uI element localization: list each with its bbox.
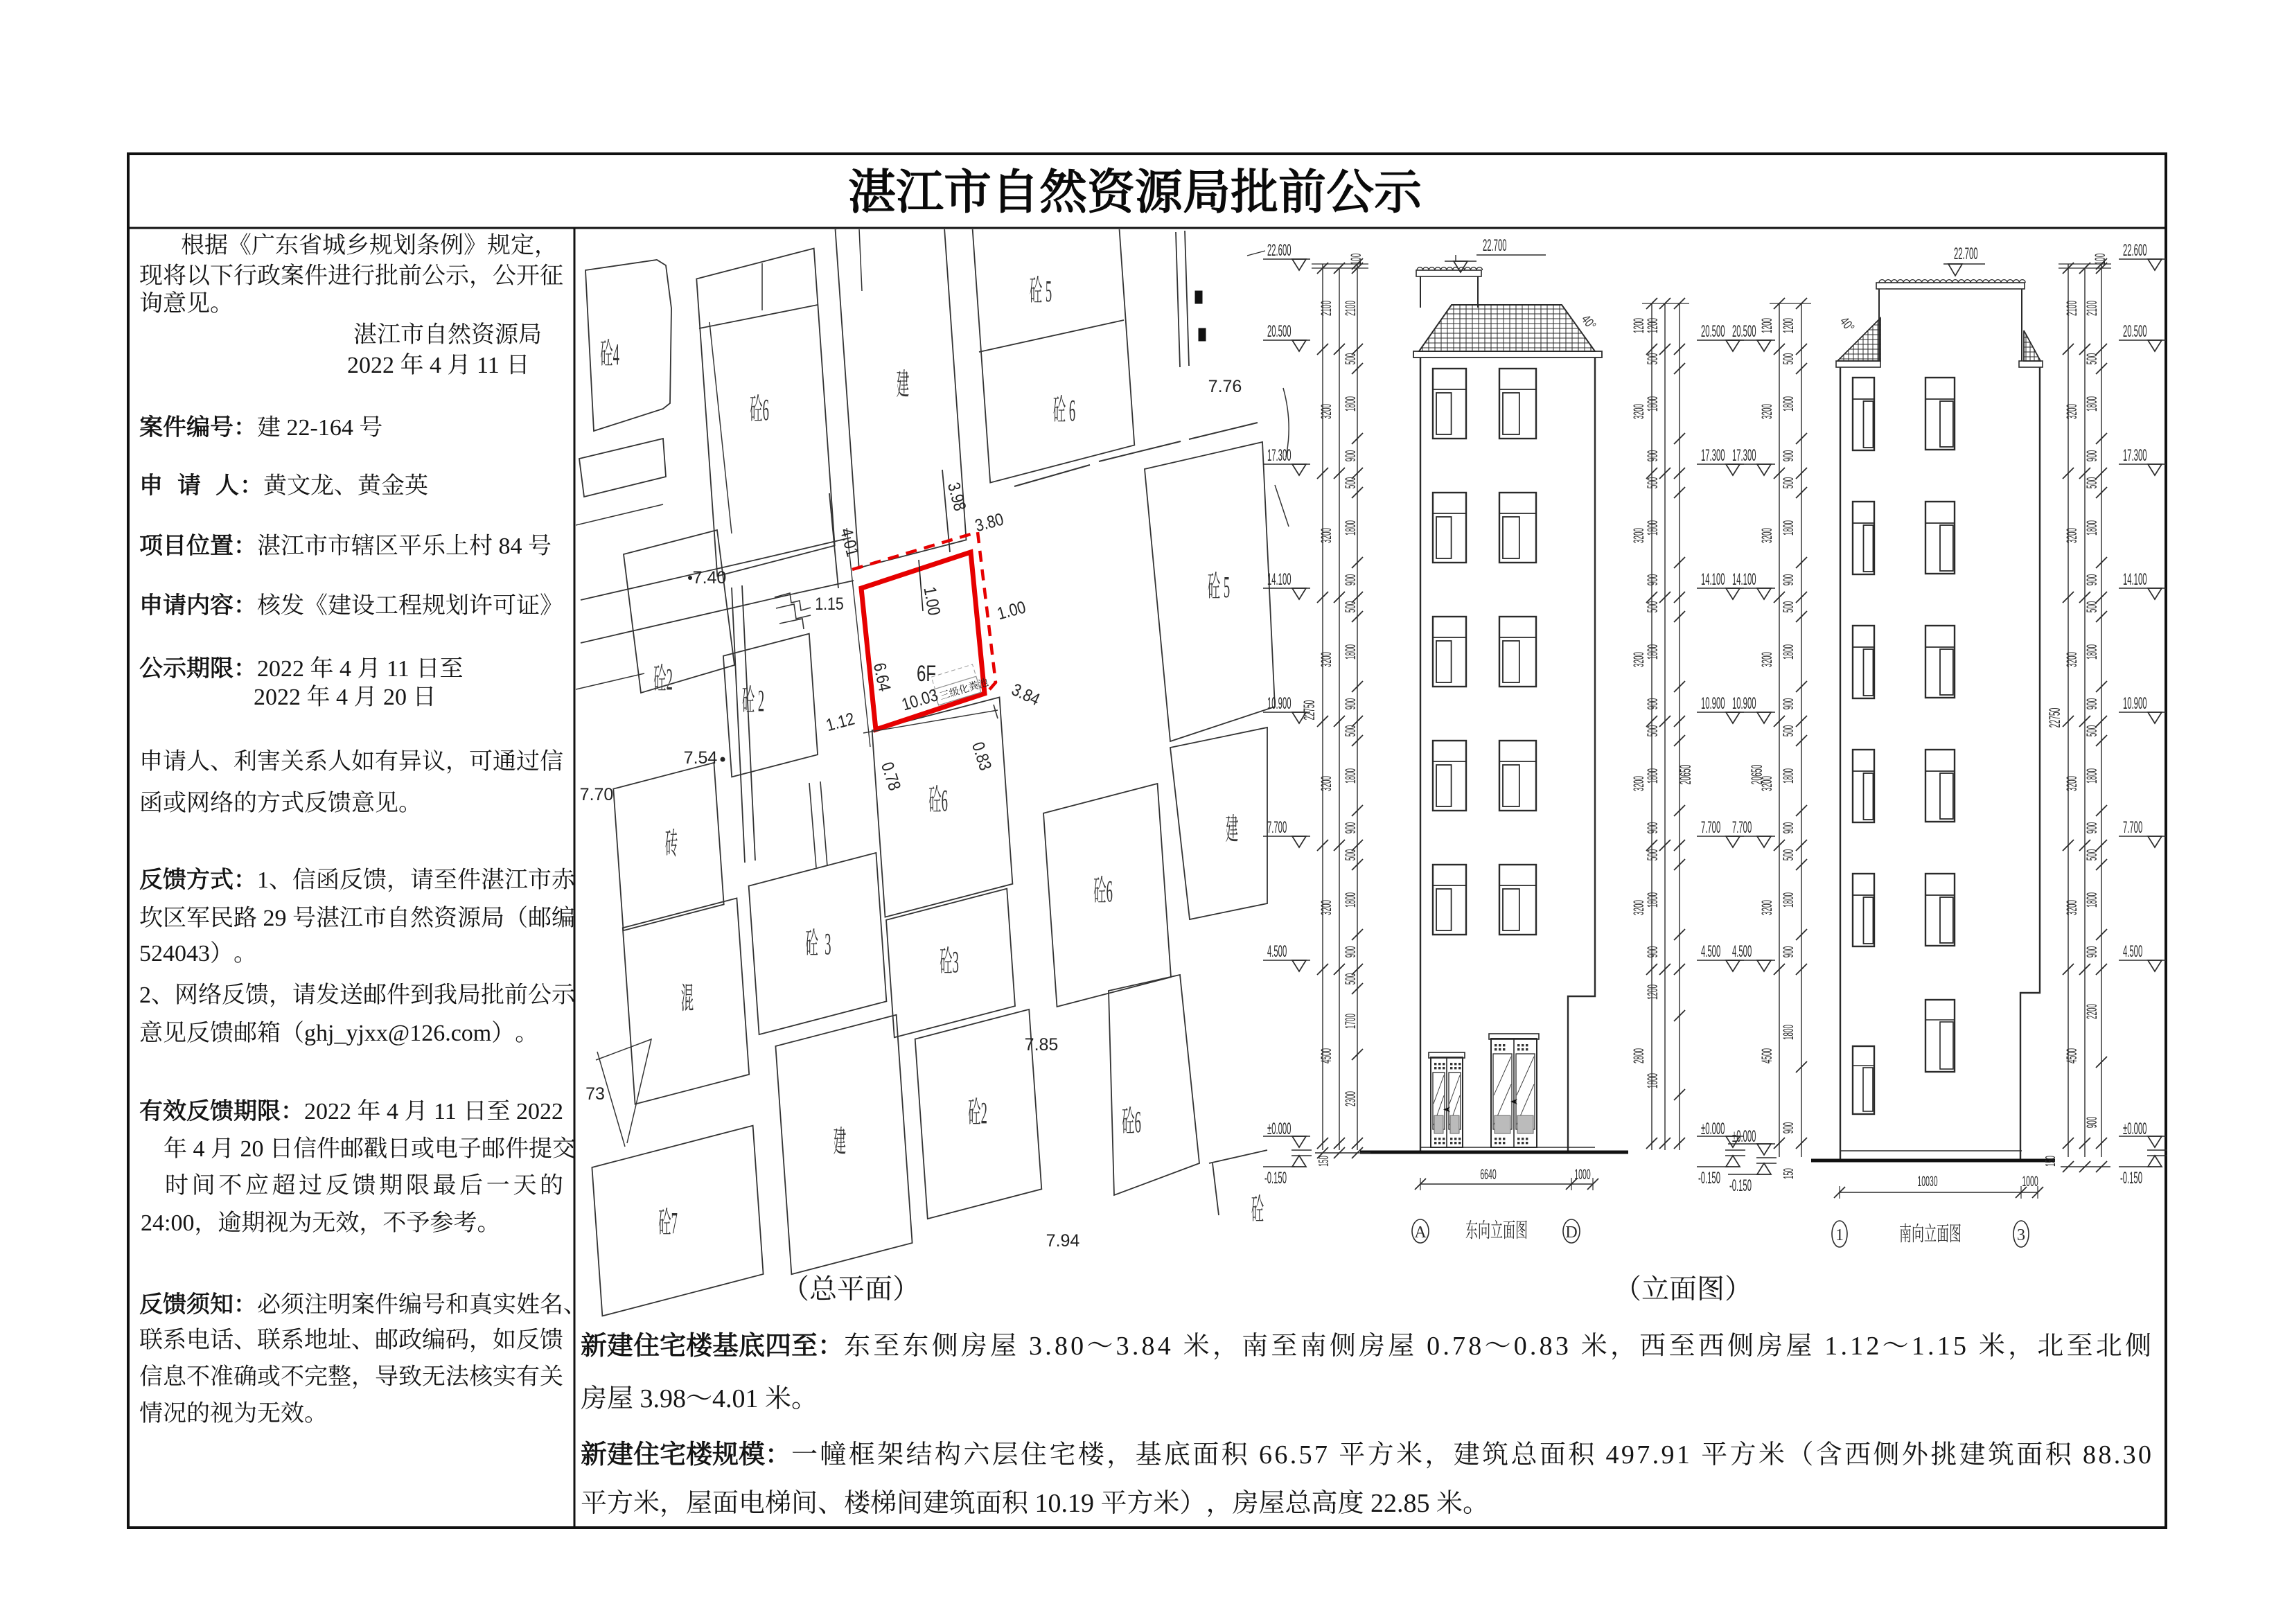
- svg-text:1800: 1800: [1781, 520, 1797, 536]
- svg-text:900: 900: [1343, 698, 1359, 709]
- svg-text:7.85: 7.85: [1025, 1035, 1059, 1054]
- svg-text:10.900: 10.900: [1267, 694, 1292, 712]
- svg-text:14.100: 14.100: [1732, 570, 1756, 588]
- svg-text:2022: 2022: [257, 656, 310, 682]
- svg-text:500: 500: [1781, 725, 1797, 736]
- svg-text:88.30: 88.30: [2074, 1440, 2153, 1469]
- svg-text:3200: 3200: [2064, 652, 2080, 667]
- svg-text:7.40: 7.40: [693, 568, 727, 588]
- svg-text:11: 11: [471, 353, 506, 378]
- svg-text:1200: 1200: [1645, 985, 1661, 1000]
- svg-text:3: 3: [953, 946, 959, 979]
- svg-text:5: 5: [1220, 571, 1230, 604]
- svg-text:1800: 1800: [2084, 396, 2100, 412]
- svg-text:±0.000: ±0.000: [2123, 1119, 2146, 1138]
- svg-text:7.700: 7.700: [1732, 818, 1752, 836]
- svg-text:2022: 2022: [254, 685, 307, 710]
- svg-text:-0.150: -0.150: [1264, 1168, 1287, 1187]
- svg-text:1000: 1000: [1574, 1166, 1590, 1183]
- svg-text:1800: 1800: [1343, 396, 1359, 412]
- svg-text:10.900: 10.900: [1732, 694, 1756, 712]
- svg-text:4: 4: [334, 656, 358, 682]
- svg-text:7.700: 7.700: [1267, 818, 1287, 836]
- svg-text:10.900: 10.900: [1701, 694, 1725, 712]
- svg-text:900: 900: [2084, 946, 2100, 957]
- svg-text:500: 500: [1781, 849, 1797, 860]
- svg-text:1800: 1800: [1645, 892, 1661, 908]
- svg-text:900: 900: [1645, 698, 1661, 709]
- svg-text:22750: 22750: [2046, 708, 2064, 728]
- svg-text:500: 500: [1781, 601, 1797, 612]
- svg-text:17.300: 17.300: [1267, 445, 1292, 464]
- svg-text:3200: 3200: [1319, 528, 1334, 543]
- svg-text:900: 900: [2084, 822, 2100, 833]
- svg-text:6: 6: [942, 784, 948, 818]
- svg-text:±0.000: ±0.000: [1267, 1119, 1291, 1138]
- svg-text:2022: 2022: [304, 1099, 358, 1124]
- svg-text:22.700: 22.700: [1483, 236, 1507, 254]
- svg-text:1200: 1200: [1759, 318, 1775, 333]
- svg-text:2022: 2022: [511, 1099, 564, 1124]
- svg-text:4: 4: [381, 1099, 405, 1124]
- svg-text:1800: 1800: [1343, 520, 1359, 536]
- svg-text:900: 900: [1343, 822, 1359, 833]
- svg-text:7: 7: [671, 1207, 678, 1240]
- svg-text:1800: 1800: [1645, 644, 1661, 660]
- svg-text:-0.150: -0.150: [1729, 1176, 1752, 1194]
- svg-text:2300: 2300: [1343, 1091, 1359, 1106]
- svg-text:2200: 2200: [2084, 1004, 2100, 1019]
- svg-text:1800: 1800: [1343, 892, 1359, 908]
- svg-text:900: 900: [1781, 1122, 1797, 1133]
- svg-text:20.500: 20.500: [1701, 321, 1725, 340]
- svg-text:500: 500: [1781, 477, 1797, 488]
- svg-text:1.15: 1.15: [1912, 1332, 1979, 1361]
- svg-text:1800: 1800: [1781, 644, 1797, 660]
- svg-text:0.78: 0.78: [1417, 1332, 1484, 1361]
- svg-text:2100: 2100: [2084, 301, 2100, 316]
- svg-text:84: 84: [493, 533, 528, 559]
- svg-text:3200: 3200: [1759, 652, 1775, 667]
- svg-text:1800: 1800: [1781, 1025, 1797, 1040]
- svg-text:±0.000: ±0.000: [1732, 1127, 1756, 1145]
- svg-text:4.500: 4.500: [1701, 942, 1720, 960]
- svg-text:24:00: 24:00: [141, 1210, 194, 1236]
- svg-text:3200: 3200: [1759, 404, 1775, 419]
- svg-text:7.700: 7.700: [2123, 818, 2142, 836]
- svg-text:500: 500: [1343, 477, 1359, 488]
- svg-text:500: 500: [1343, 353, 1359, 364]
- svg-text:3200: 3200: [1759, 528, 1775, 543]
- svg-text:900: 900: [1781, 450, 1797, 461]
- svg-text:524043: 524043: [139, 941, 210, 967]
- svg-text:500: 500: [2084, 353, 2100, 364]
- svg-text:4.500: 4.500: [2123, 942, 2142, 960]
- svg-text:900: 900: [2084, 698, 2100, 709]
- svg-text:500: 500: [1645, 601, 1661, 612]
- svg-text:500: 500: [2084, 849, 2100, 860]
- svg-text:100: 100: [2092, 254, 2108, 265]
- svg-text:900: 900: [1645, 450, 1661, 461]
- svg-text:1800: 1800: [1781, 396, 1797, 412]
- svg-text:7.70: 7.70: [580, 785, 614, 804]
- svg-text:20.500: 20.500: [1267, 321, 1292, 340]
- svg-text:100: 100: [1348, 254, 1364, 265]
- svg-text:±0.000: ±0.000: [1701, 1119, 1725, 1138]
- svg-text:900: 900: [1781, 698, 1797, 709]
- svg-text:4: 4: [330, 685, 354, 710]
- svg-text:4: 4: [613, 338, 619, 371]
- svg-text:1800: 1800: [1781, 892, 1797, 908]
- svg-text:1800: 1800: [1343, 644, 1359, 660]
- svg-text:2: 2: [139, 982, 151, 1008]
- svg-text:500: 500: [1343, 973, 1359, 985]
- svg-text:14.100: 14.100: [2123, 570, 2147, 588]
- svg-text:900: 900: [1343, 574, 1359, 585]
- svg-text:1000: 1000: [2022, 1173, 2038, 1190]
- svg-text:66.57: 66.57: [1250, 1440, 1339, 1469]
- svg-text:1: 1: [257, 867, 269, 893]
- svg-text:17.300: 17.300: [2123, 445, 2147, 464]
- svg-text:1800: 1800: [1781, 768, 1797, 784]
- svg-text:500: 500: [2084, 601, 2100, 612]
- svg-text:1800: 1800: [2084, 644, 2100, 660]
- svg-text:6: 6: [1066, 394, 1075, 427]
- svg-text:1: 1: [1835, 1226, 1844, 1244]
- svg-text:900: 900: [1781, 574, 1797, 585]
- svg-text:900: 900: [1781, 822, 1797, 833]
- svg-text:3200: 3200: [1319, 900, 1334, 915]
- svg-text:4: 4: [424, 353, 448, 378]
- svg-text:7.94: 7.94: [1046, 1231, 1080, 1251]
- svg-text:4.500: 4.500: [1732, 942, 1752, 960]
- svg-text:3200: 3200: [1319, 652, 1334, 667]
- svg-text:22.700: 22.700: [1954, 244, 1978, 263]
- svg-text:2100: 2100: [1319, 301, 1334, 316]
- svg-text:150: 150: [1781, 1168, 1797, 1179]
- svg-text:2: 2: [981, 1097, 987, 1130]
- svg-text:900: 900: [2084, 574, 2100, 585]
- svg-text:500: 500: [2084, 477, 2100, 488]
- svg-text:20: 20: [234, 1136, 270, 1162]
- svg-text:500: 500: [1645, 725, 1661, 736]
- svg-text:4: 4: [187, 1136, 211, 1162]
- svg-text:11: 11: [381, 656, 416, 682]
- svg-text:5: 5: [1042, 275, 1052, 308]
- svg-text:1800: 1800: [1645, 520, 1661, 536]
- svg-text:20650: 20650: [1677, 765, 1695, 785]
- svg-text:1700: 1700: [1343, 1014, 1359, 1029]
- svg-text:14.100: 14.100: [1701, 570, 1725, 588]
- svg-text:3200: 3200: [1319, 404, 1334, 419]
- svg-text:900: 900: [2084, 1117, 2100, 1128]
- svg-text:3.84: 3.84: [1116, 1332, 1183, 1361]
- svg-text:17.300: 17.300: [1701, 445, 1725, 464]
- svg-text:4500: 4500: [1319, 1048, 1334, 1063]
- svg-text:22.600: 22.600: [1267, 240, 1292, 259]
- svg-text:900: 900: [1343, 450, 1359, 461]
- svg-text:2: 2: [755, 685, 764, 718]
- svg-text:2022: 2022: [347, 353, 400, 378]
- svg-text:3200: 3200: [1759, 900, 1775, 915]
- svg-text:11: 11: [428, 1099, 463, 1124]
- svg-text:6: 6: [763, 394, 769, 427]
- svg-text:900: 900: [1343, 946, 1359, 957]
- svg-text:73: 73: [585, 1084, 605, 1104]
- svg-text:900: 900: [1781, 946, 1797, 957]
- svg-text:1200: 1200: [1645, 318, 1661, 333]
- svg-text:500: 500: [1645, 353, 1661, 364]
- svg-text:6F: 6F: [917, 661, 936, 686]
- svg-text:1200: 1200: [1781, 318, 1797, 333]
- svg-text:3200: 3200: [1319, 776, 1334, 791]
- svg-text:1.12: 1.12: [1815, 1332, 1883, 1361]
- svg-text:500: 500: [1781, 353, 1797, 364]
- svg-text:2100: 2100: [2064, 301, 2080, 316]
- svg-text:497.91: 497.91: [1597, 1440, 1702, 1469]
- svg-text:1800: 1800: [1645, 396, 1661, 412]
- svg-text:2100: 2100: [1343, 301, 1359, 316]
- svg-text:4500: 4500: [2064, 1048, 2080, 1063]
- svg-text:1800: 1800: [1343, 768, 1359, 784]
- svg-text:900: 900: [1645, 946, 1661, 957]
- svg-text:500: 500: [1645, 849, 1661, 860]
- svg-text:900: 900: [1645, 574, 1661, 585]
- svg-text:3200: 3200: [2064, 900, 2080, 915]
- svg-text:2800: 2800: [1631, 1048, 1647, 1063]
- svg-text:4500: 4500: [1759, 1048, 1775, 1063]
- svg-text:3200: 3200: [2064, 404, 2080, 419]
- svg-text:20650: 20650: [1748, 765, 1766, 785]
- svg-text:4.01: 4.01: [712, 1384, 765, 1413]
- svg-text:2: 2: [667, 663, 673, 696]
- svg-text:ghj_yjxx@126.com: ghj_yjxx@126.com: [304, 1021, 491, 1046]
- svg-text:1800: 1800: [2084, 768, 2100, 784]
- svg-text:1800: 1800: [1645, 1073, 1661, 1088]
- svg-text:20: 20: [378, 685, 413, 710]
- svg-text:900: 900: [1645, 822, 1661, 833]
- svg-text:900: 900: [2084, 450, 2100, 461]
- svg-text:500: 500: [2084, 725, 2100, 736]
- svg-text:500: 500: [1343, 849, 1359, 860]
- svg-text:1.15: 1.15: [815, 594, 843, 613]
- svg-text:1800: 1800: [2084, 892, 2100, 908]
- svg-text:10.900: 10.900: [2123, 694, 2147, 712]
- svg-text:-0.150: -0.150: [1698, 1168, 1720, 1187]
- svg-text:3.80: 3.80: [1019, 1332, 1086, 1361]
- svg-text:22-164: 22-164: [281, 415, 359, 441]
- svg-text:-0.150: -0.150: [2120, 1168, 2142, 1187]
- svg-text:500: 500: [1343, 725, 1359, 736]
- svg-text:3.98: 3.98: [633, 1384, 686, 1413]
- svg-text:3200: 3200: [2064, 528, 2080, 543]
- svg-text:1800: 1800: [2084, 520, 2100, 536]
- svg-text:20.500: 20.500: [2123, 321, 2147, 340]
- svg-text:14.100: 14.100: [1267, 570, 1292, 588]
- svg-text:6640: 6640: [1480, 1166, 1496, 1183]
- svg-text:150: 150: [2043, 1156, 2059, 1167]
- svg-text:22.600: 22.600: [2123, 240, 2147, 259]
- svg-text:10.19: 10.19: [1028, 1489, 1101, 1518]
- svg-text:6: 6: [1107, 875, 1113, 908]
- svg-text:4.500: 4.500: [1267, 942, 1287, 960]
- svg-text:0.83: 0.83: [1514, 1332, 1581, 1361]
- svg-text:A: A: [1414, 1224, 1427, 1242]
- svg-text:6: 6: [1135, 1106, 1141, 1139]
- svg-text:20.500: 20.500: [1732, 321, 1756, 340]
- svg-text:D: D: [1565, 1224, 1577, 1242]
- svg-text:22.85: 22.85: [1364, 1489, 1437, 1518]
- svg-text:29: 29: [257, 906, 292, 931]
- svg-text:3: 3: [818, 928, 831, 961]
- svg-text:7.54: 7.54: [684, 748, 718, 768]
- svg-text:10030: 10030: [1917, 1173, 1937, 1190]
- svg-text:500: 500: [1645, 477, 1661, 488]
- svg-text:17.300: 17.300: [1732, 445, 1756, 464]
- svg-text:1800: 1800: [1645, 768, 1661, 784]
- svg-text:500: 500: [1343, 601, 1359, 612]
- svg-text:7.76: 7.76: [1208, 377, 1242, 396]
- svg-text:3200: 3200: [2064, 776, 2080, 791]
- svg-text:3: 3: [2017, 1226, 2025, 1244]
- svg-text:7.700: 7.700: [1701, 818, 1720, 836]
